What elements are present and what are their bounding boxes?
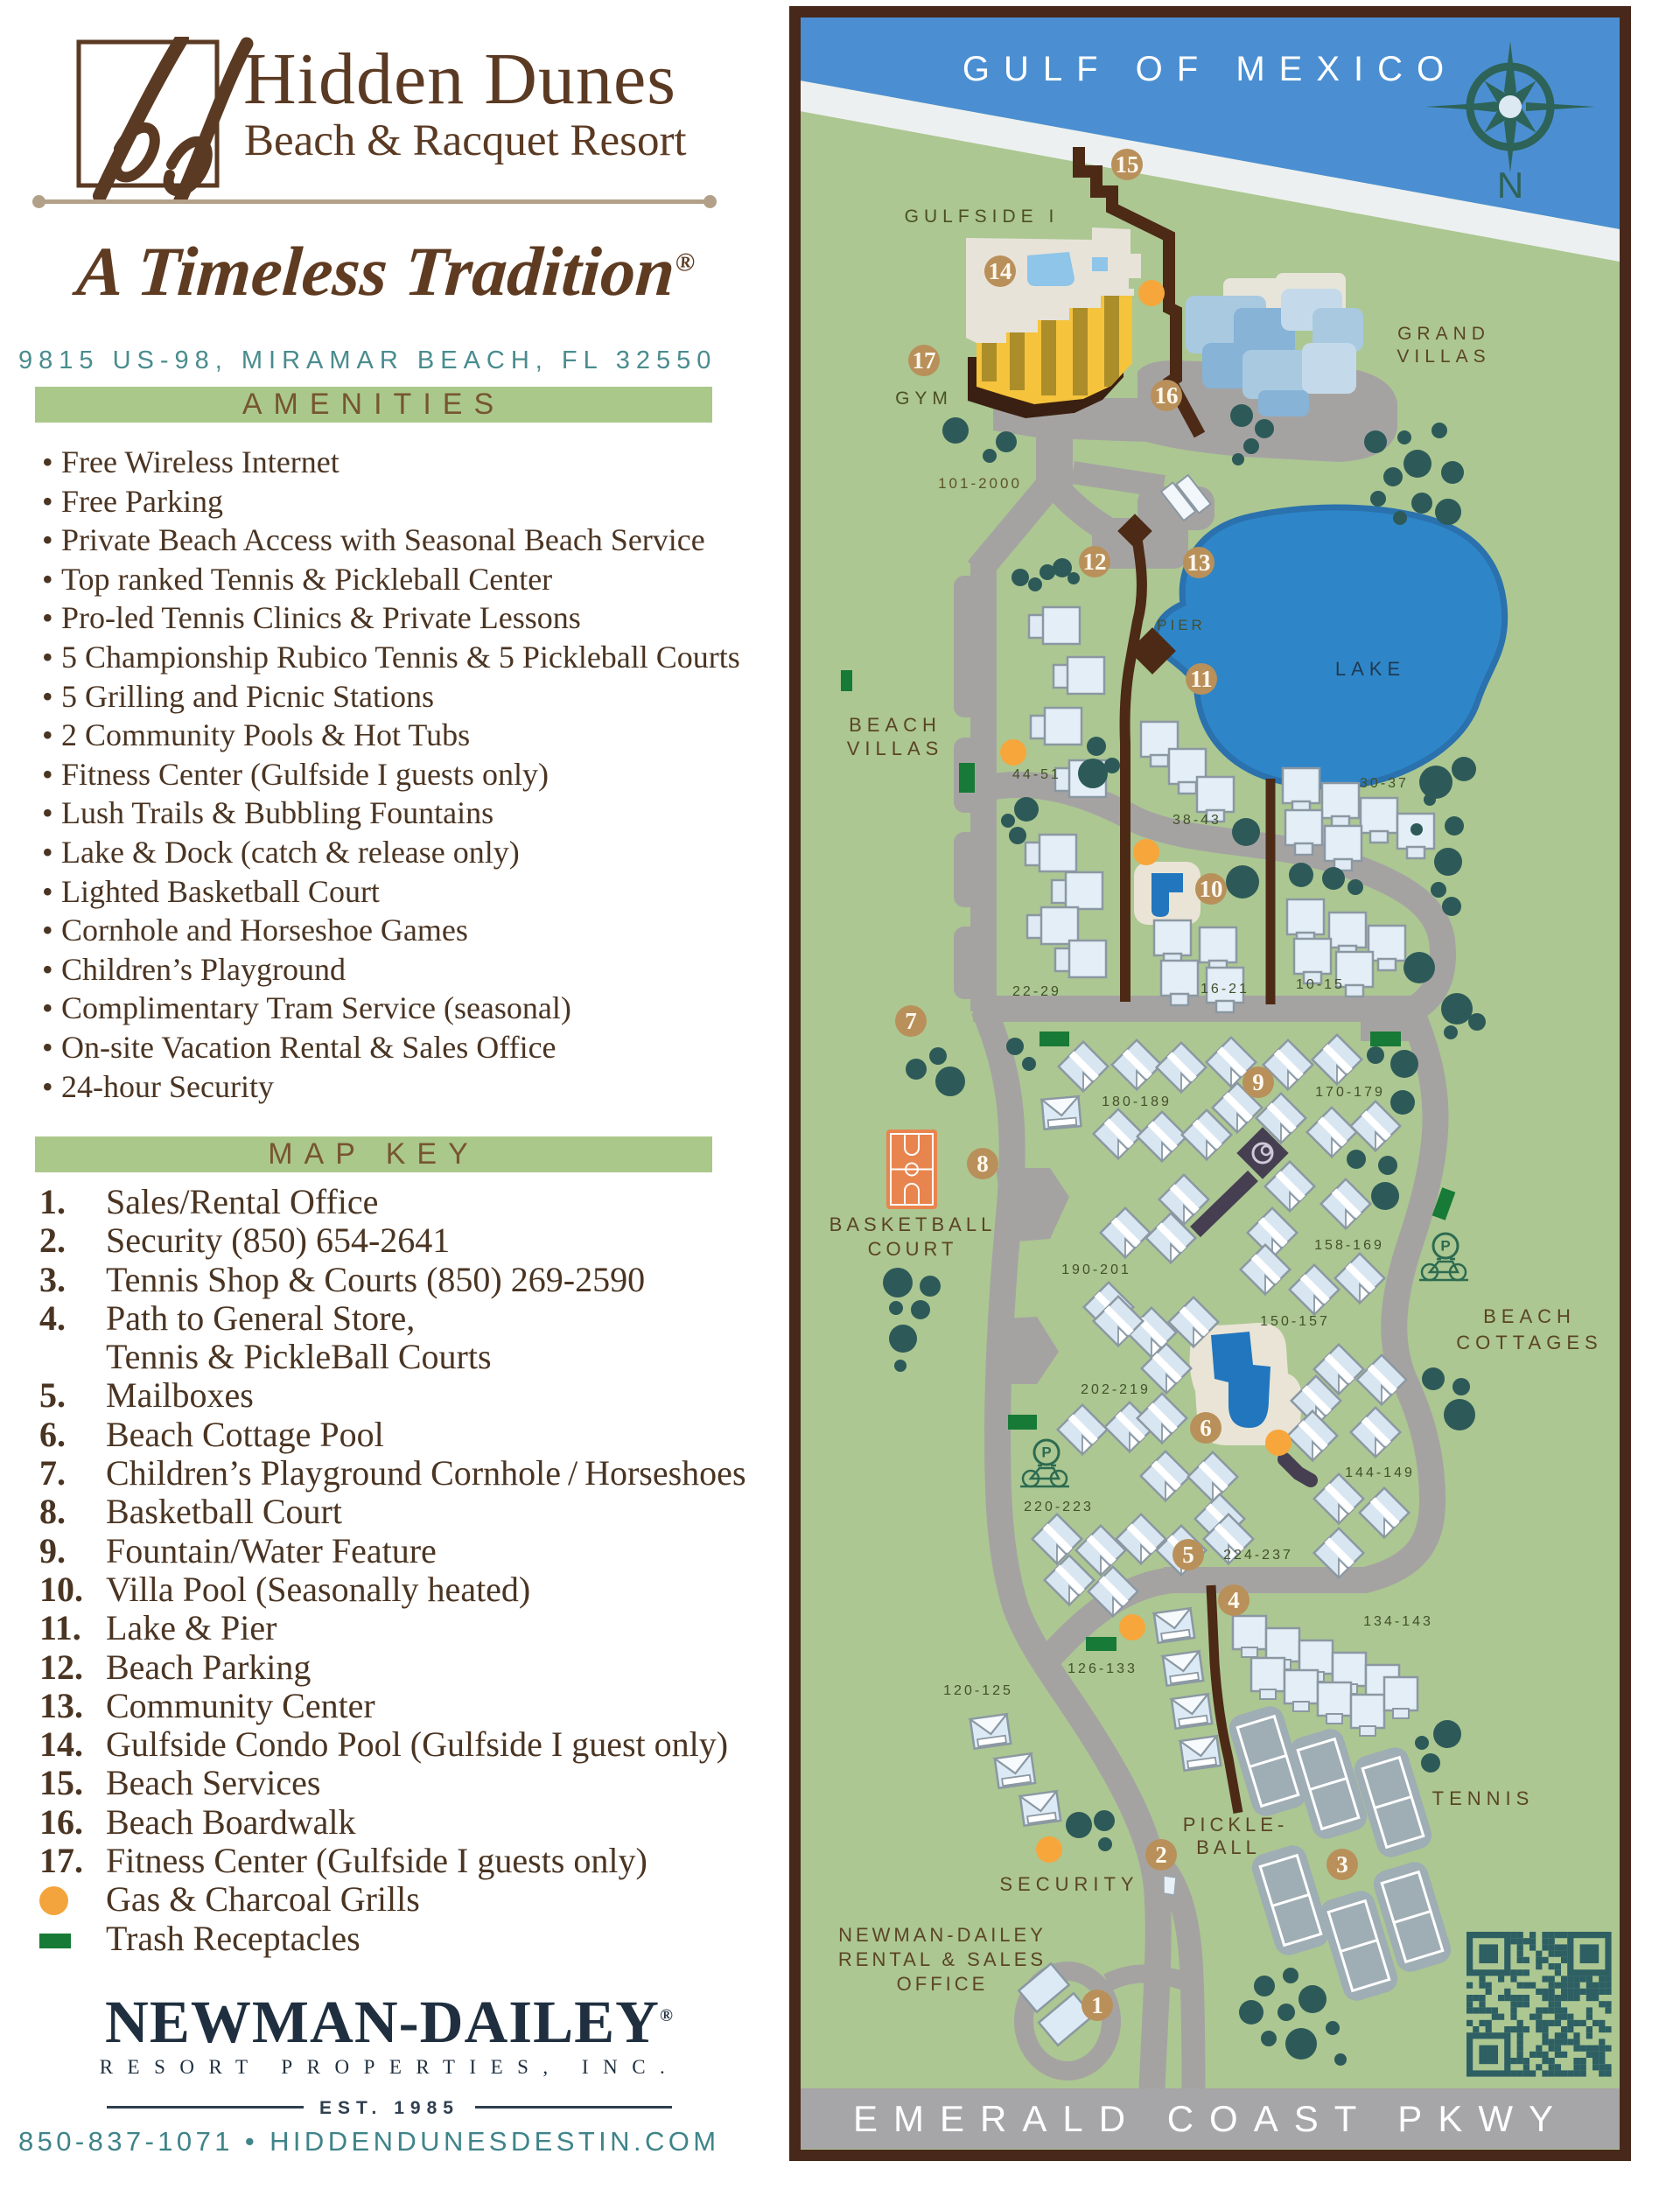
svg-text:180-189: 180-189 bbox=[1102, 1095, 1172, 1109]
svg-text:16: 16 bbox=[1155, 382, 1179, 409]
svg-text:OFFICE: OFFICE bbox=[897, 1973, 989, 1995]
svg-text:6: 6 bbox=[1200, 1415, 1212, 1441]
svg-text:COURT: COURT bbox=[868, 1238, 958, 1260]
svg-text:22-29: 22-29 bbox=[1012, 984, 1061, 999]
svg-text:VILLAS: VILLAS bbox=[847, 738, 944, 759]
svg-text:PIER: PIER bbox=[1157, 617, 1206, 633]
svg-text:GULFSIDE I: GULFSIDE I bbox=[905, 206, 1060, 227]
svg-text:190-201: 190-201 bbox=[1061, 1262, 1131, 1277]
svg-text:COTTAGES: COTTAGES bbox=[1456, 1332, 1602, 1353]
svg-text:1: 1 bbox=[1091, 1992, 1103, 2018]
svg-text:9: 9 bbox=[1252, 1069, 1264, 1095]
svg-text:14: 14 bbox=[989, 258, 1012, 284]
svg-text:16-21: 16-21 bbox=[1200, 982, 1249, 997]
svg-text:GULF OF MEXICO: GULF OF MEXICO bbox=[962, 50, 1458, 88]
svg-text:101-2000: 101-2000 bbox=[938, 475, 1022, 492]
svg-text:2: 2 bbox=[1155, 1842, 1167, 1868]
svg-text:BEACH: BEACH bbox=[849, 714, 941, 736]
svg-text:220-223: 220-223 bbox=[1024, 1500, 1094, 1514]
svg-text:15: 15 bbox=[1116, 151, 1139, 178]
svg-text:TENNIS: TENNIS bbox=[1432, 1787, 1535, 1809]
svg-text:44-51: 44-51 bbox=[1012, 767, 1061, 782]
svg-text:126-133: 126-133 bbox=[1067, 1661, 1137, 1676]
svg-text:RENTAL & SALES: RENTAL & SALES bbox=[838, 1948, 1046, 1970]
svg-text:12: 12 bbox=[1083, 549, 1107, 575]
svg-text:4: 4 bbox=[1228, 1587, 1240, 1613]
svg-text:120-125: 120-125 bbox=[943, 1683, 1013, 1698]
svg-text:144-149: 144-149 bbox=[1345, 1465, 1415, 1480]
svg-text:3: 3 bbox=[1336, 1851, 1348, 1878]
svg-text:10: 10 bbox=[1200, 876, 1223, 902]
svg-text:SECURITY: SECURITY bbox=[999, 1873, 1138, 1895]
svg-text:158-169: 158-169 bbox=[1314, 1238, 1384, 1253]
svg-text:EMERALD COAST PKWY: EMERALD COAST PKWY bbox=[853, 2098, 1569, 2139]
svg-text:5: 5 bbox=[1182, 1542, 1194, 1568]
svg-text:NEWMAN-DAILEY: NEWMAN-DAILEY bbox=[838, 1924, 1046, 1946]
svg-text:PICKLE-: PICKLE- bbox=[1183, 1814, 1289, 1836]
svg-text:BEACH: BEACH bbox=[1483, 1305, 1576, 1327]
svg-text:BASKETBALL: BASKETBALL bbox=[829, 1213, 997, 1235]
svg-text:GYM: GYM bbox=[895, 388, 953, 409]
svg-text:N: N bbox=[1497, 164, 1523, 206]
svg-text:GRAND: GRAND bbox=[1397, 324, 1490, 344]
svg-text:10-15: 10-15 bbox=[1296, 977, 1345, 992]
svg-text:11: 11 bbox=[1190, 666, 1213, 692]
svg-text:13: 13 bbox=[1187, 549, 1211, 576]
svg-text:224-237: 224-237 bbox=[1223, 1548, 1293, 1563]
svg-text:150-157: 150-157 bbox=[1260, 1314, 1330, 1329]
svg-text:134-143: 134-143 bbox=[1363, 1614, 1433, 1629]
svg-text:30-37: 30-37 bbox=[1360, 776, 1409, 791]
svg-text:170-179: 170-179 bbox=[1315, 1085, 1385, 1100]
svg-text:VILLAS: VILLAS bbox=[1396, 346, 1490, 367]
svg-text:38-43: 38-43 bbox=[1172, 813, 1221, 828]
svg-text:8: 8 bbox=[976, 1150, 989, 1177]
svg-text:7: 7 bbox=[905, 1008, 917, 1034]
svg-text:BALL: BALL bbox=[1196, 1836, 1261, 1858]
svg-text:17: 17 bbox=[913, 347, 936, 374]
svg-text:LAKE: LAKE bbox=[1335, 658, 1405, 680]
svg-text:202-219: 202-219 bbox=[1081, 1382, 1151, 1397]
